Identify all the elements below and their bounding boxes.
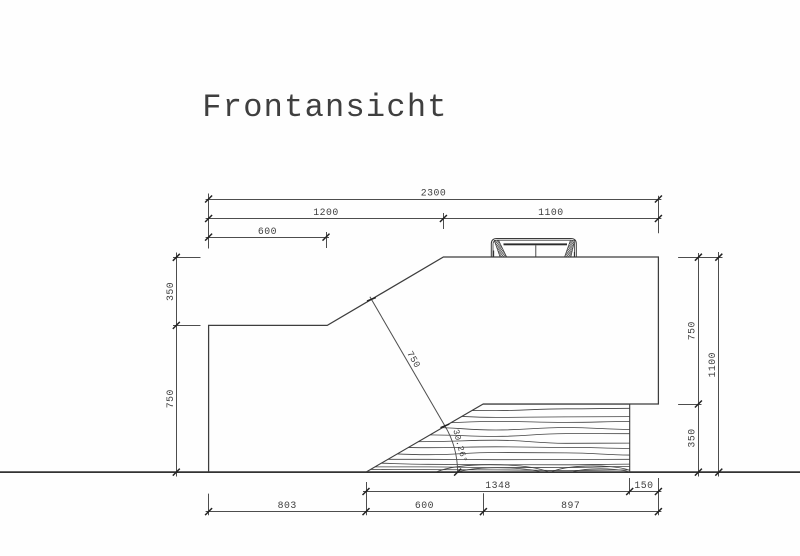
svg-text:1100: 1100 (707, 352, 718, 378)
svg-text:897: 897 (561, 500, 580, 511)
svg-text:350: 350 (687, 428, 698, 447)
svg-text:Frontansicht: Frontansicht (202, 89, 447, 126)
svg-text:30.26°: 30.26° (450, 428, 468, 464)
svg-text:750: 750 (404, 349, 422, 370)
svg-text:150: 150 (634, 480, 653, 491)
svg-text:1200: 1200 (313, 207, 339, 218)
svg-text:2300: 2300 (421, 188, 447, 199)
svg-text:803: 803 (278, 500, 297, 511)
svg-text:350: 350 (165, 282, 176, 301)
svg-text:750: 750 (165, 389, 176, 408)
svg-text:600: 600 (258, 226, 277, 237)
svg-text:1100: 1100 (538, 207, 564, 218)
svg-text:750: 750 (687, 321, 698, 340)
svg-text:1348: 1348 (485, 480, 511, 491)
svg-text:600: 600 (415, 500, 434, 511)
